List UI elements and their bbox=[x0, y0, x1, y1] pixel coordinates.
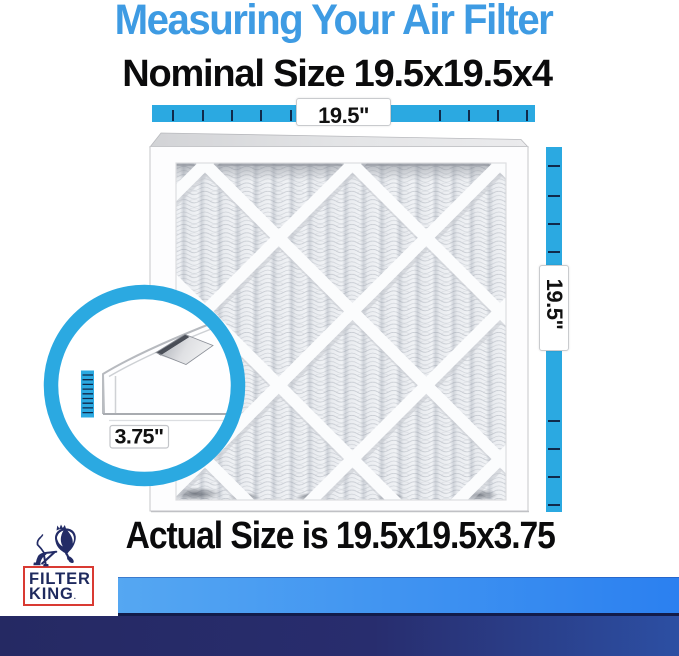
svg-text:3.75": 3.75" bbox=[114, 425, 163, 449]
